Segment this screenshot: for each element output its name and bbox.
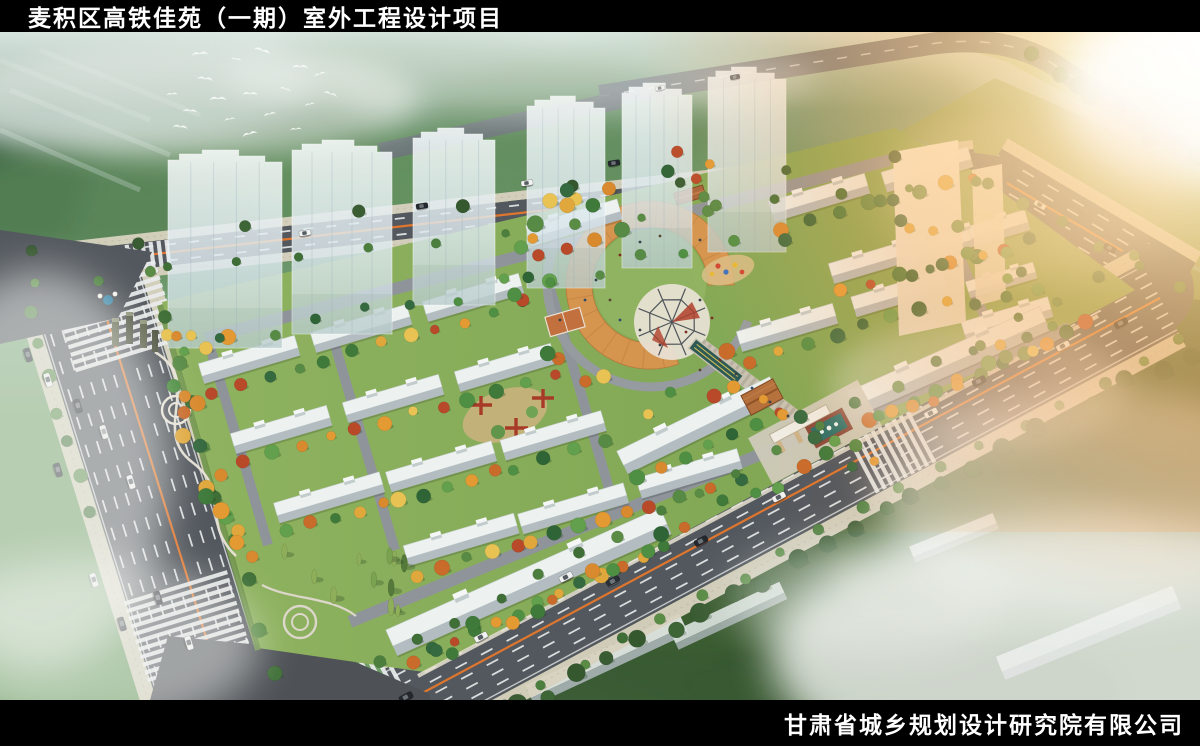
project-title: 麦积区高铁佳苑（一期）室外工程设计项目	[28, 0, 503, 33]
company-name: 甘肃省城乡规划设计研究院有限公司	[784, 706, 1184, 740]
poster: 麦积区高铁佳苑（一期）室外工程设计项目	[0, 0, 1200, 746]
residential-tower	[413, 128, 495, 305]
residential-tower	[168, 150, 282, 348]
credit-bar: 甘肃省城乡规划设计研究院有限公司	[0, 700, 1200, 746]
residential-tower	[292, 140, 392, 334]
title-bar: 麦积区高铁佳苑（一期）室外工程设计项目	[0, 0, 1200, 32]
aerial-rendering	[0, 32, 1200, 700]
sun-glare	[560, 32, 1200, 616]
